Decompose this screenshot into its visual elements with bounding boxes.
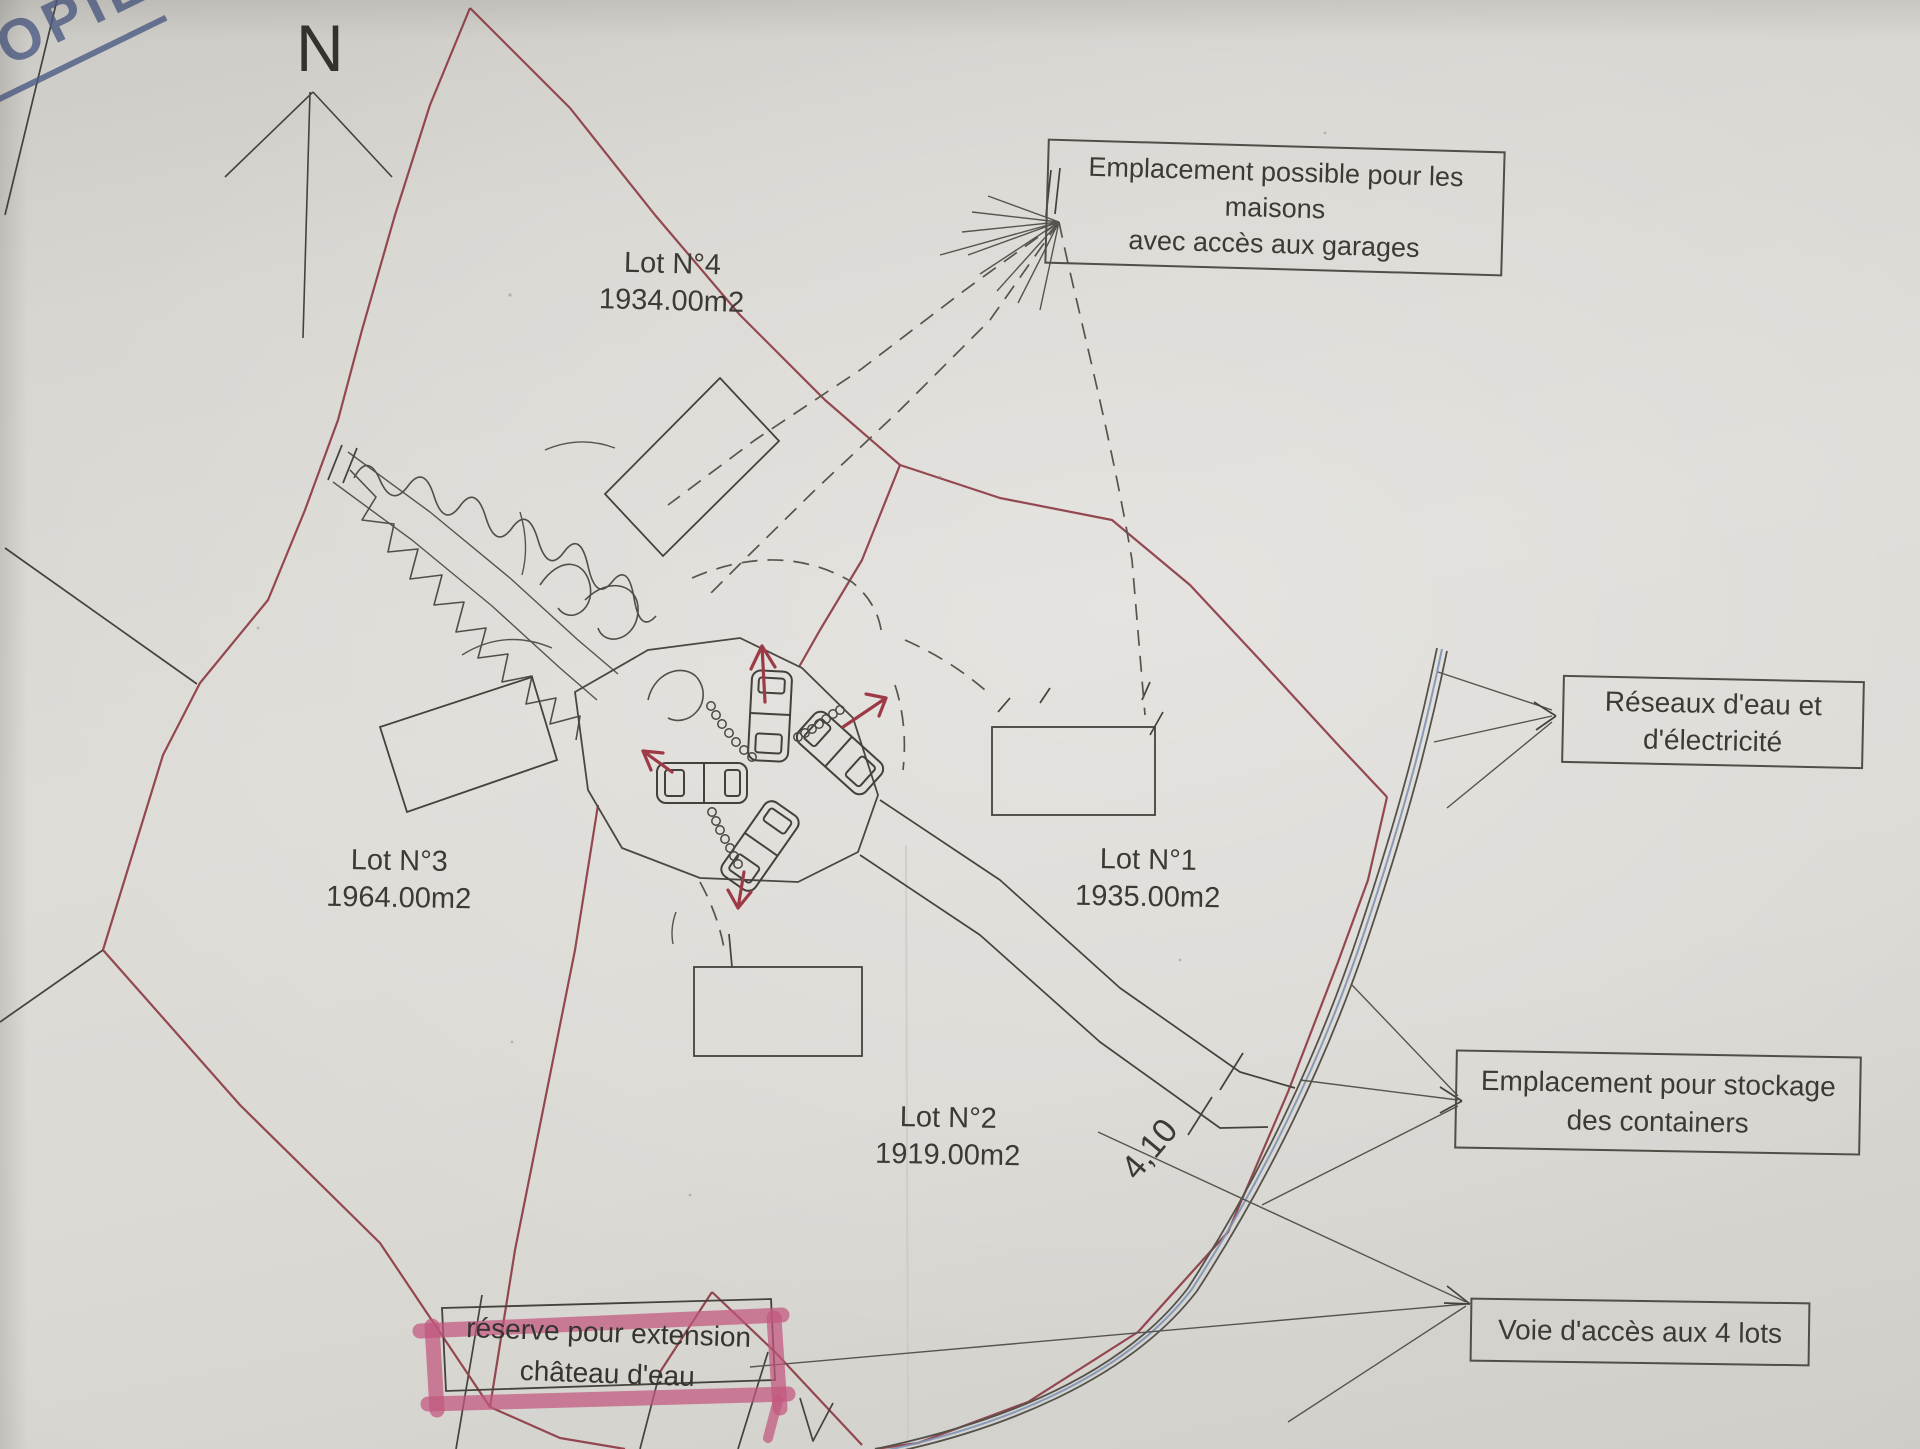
lot3-label: Lot N°3 1964.00m2: [326, 842, 472, 919]
scanned-site-plan: COPIE N Lot N°4 1934.00m2 Lot N°3 1964.0…: [0, 0, 1920, 1449]
car-icon: [718, 798, 802, 895]
field-lines: [0, 0, 768, 1449]
annotation-fan: [940, 168, 1060, 310]
access-direction-arrows: [643, 646, 886, 908]
house-lot1: [992, 727, 1155, 815]
north-label: N: [296, 10, 344, 86]
arrowhead: [1444, 1286, 1470, 1304]
lot4-name: Lot N°4: [599, 244, 745, 285]
annotation-box-stockage: Emplacement pour stockage des containers: [1454, 1049, 1862, 1155]
house-lot4: [605, 378, 779, 556]
car-icon: [793, 708, 887, 798]
lot1-name: Lot N°1: [1075, 841, 1221, 881]
reserve-note: réserve pour extension château d'eau: [441, 1306, 776, 1400]
arrowhead: [1534, 702, 1556, 730]
dotted-hedge-chain: [707, 702, 844, 868]
annotation-box-voie: Voie d'accès aux 4 lots: [1470, 1298, 1811, 1367]
arrowhead: [800, 1398, 833, 1441]
lot4-label: Lot N°4 1934.00m2: [598, 244, 745, 322]
lot1-area: 1935.00m2: [1075, 878, 1221, 918]
annotation-box-reseaux: Réseaux d'eau et d'électricité: [1561, 675, 1865, 769]
annotation-box-maisons: Emplacement possible pour les maisons av…: [1044, 139, 1505, 277]
path-corridor-scribble: [328, 442, 703, 740]
lot3-area: 1964.00m2: [326, 879, 472, 919]
lot3-name: Lot N°3: [326, 842, 472, 882]
house-footprints: [380, 378, 1163, 1056]
turnaround-hub: [575, 638, 887, 908]
house-lot2: [694, 967, 862, 1056]
house-lot3: [380, 677, 557, 812]
lot2-area: 1919.00m2: [875, 1136, 1021, 1176]
lot2-name: Lot N°2: [875, 1099, 1021, 1139]
lot4-area: 1934.00m2: [598, 281, 744, 322]
lot2-label: Lot N°2 1919.00m2: [875, 1099, 1021, 1176]
lot1-label: Lot N°1 1935.00m2: [1075, 841, 1221, 918]
car-icon: [748, 670, 793, 762]
dust-specks: [257, 132, 1327, 1197]
north-arrow: [225, 92, 392, 338]
